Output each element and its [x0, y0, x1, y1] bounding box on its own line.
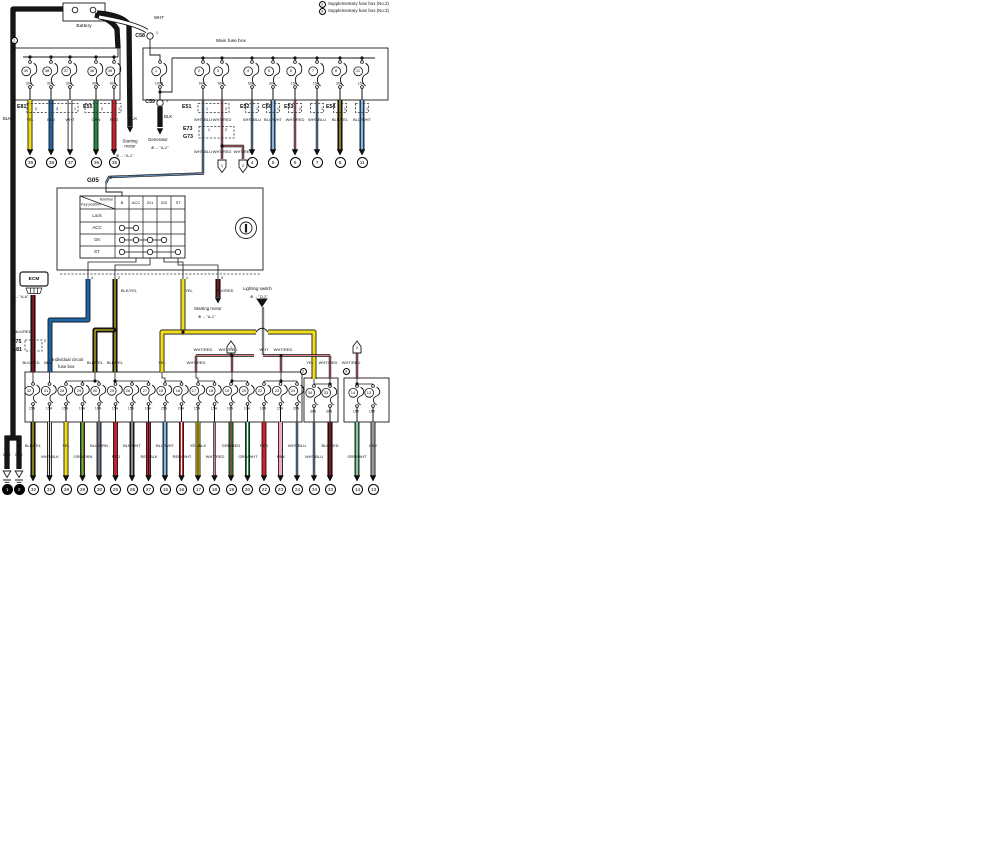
- wire-label: GRN/RED: [222, 444, 240, 448]
- wire-label: BLU: [47, 118, 55, 122]
- fuse-number: 28: [60, 389, 64, 393]
- fuse-rating: 15A: [291, 82, 297, 86]
- pin-number: 1: [166, 99, 168, 103]
- fuse-rating: 15A: [313, 82, 319, 86]
- terminal-number: 16: [176, 484, 187, 495]
- lighting-switch-label: Lighting switch: [243, 287, 272, 292]
- terminal-number: 5: [268, 157, 279, 168]
- fuse-rating: 20A: [293, 407, 299, 411]
- wire-label: WHT/BLK: [41, 455, 59, 459]
- connector-label: E51: [182, 104, 191, 110]
- connector-label: E52: [240, 104, 249, 110]
- wire-label: BLK/RED: [321, 444, 338, 448]
- wire-label: BLU: [44, 361, 52, 365]
- wire-label: WHT/BLU: [194, 118, 212, 122]
- terminal-number: 27: [143, 484, 154, 495]
- legend-mark: 3: [319, 8, 326, 15]
- terminal-number: 15: [160, 484, 171, 495]
- fuse-number: 18: [208, 389, 212, 393]
- individual-fuse-box-label: fuse box: [58, 365, 75, 370]
- ignition-column-header: IG2: [161, 201, 167, 205]
- fuse-rating: 30A: [269, 82, 275, 86]
- wire-label: WHT/RED: [342, 361, 361, 365]
- ignition-row-label: Lock: [92, 214, 101, 219]
- wire-label: WHT: [65, 118, 74, 122]
- fuse-number: 26: [126, 389, 130, 393]
- connector-label-g05: G05: [87, 178, 99, 185]
- wire-label: WHT/RED: [213, 118, 232, 122]
- wire-label: BLK: [15, 453, 23, 457]
- wire-label: RED: [260, 444, 268, 448]
- wire-label: BLK/RED: [22, 361, 39, 365]
- fuse-number: 1: [155, 69, 157, 73]
- terminal-number: 18: [209, 484, 220, 495]
- pin-number: 2: [101, 107, 103, 111]
- terminal-number: 38: [46, 157, 57, 168]
- fuse-number: 33: [324, 391, 328, 395]
- fuse-number: 17: [192, 389, 196, 393]
- fuse-rating: 60A: [248, 82, 254, 86]
- wire-label: GRN/WHT: [347, 455, 366, 459]
- fuse-number: 29: [76, 389, 80, 393]
- fuse-number: 15: [159, 389, 163, 393]
- diagram-labels: Battery WHT Main fuse box C58 1 C59 1 BL…: [0, 0, 1000, 860]
- fuse-number: 30: [93, 389, 97, 393]
- pin-number: 4: [91, 276, 93, 280]
- fuse-number: 22: [258, 389, 262, 393]
- fuse-rating: 30A: [26, 82, 32, 86]
- pin-number: 1: [321, 107, 323, 111]
- pin-number: 6: [110, 176, 112, 180]
- fuse-number: 20: [241, 389, 245, 393]
- fuse-rating: 15A: [358, 82, 364, 86]
- fuse-rating: 15A: [111, 407, 117, 411]
- wire-label: PNK: [276, 455, 284, 459]
- wire-label: BLU/WHT: [156, 444, 174, 448]
- wire-label: YEL: [306, 361, 314, 365]
- fuse-number: 14: [351, 391, 355, 395]
- terminal-number: 6: [290, 157, 301, 168]
- fuse-rating: 60A: [199, 82, 205, 86]
- wire-label: WHT/RED: [319, 361, 338, 365]
- connector-label: E81: [17, 104, 26, 110]
- fuse-rating: 10A: [243, 407, 249, 411]
- terminal-number: 26: [127, 484, 138, 495]
- fuse-rating: 60A: [110, 82, 116, 86]
- wire-label: BLK/YEL: [121, 289, 137, 293]
- terminal-number: 13: [368, 484, 379, 495]
- wire-label: YEL: [158, 361, 166, 365]
- generator-label: Generator: [148, 138, 168, 143]
- pin-number: 1: [118, 107, 120, 111]
- wire-label: GRY: [369, 444, 378, 448]
- battery-label: Battery: [76, 23, 91, 28]
- wire-label: BLK/WHT: [123, 444, 141, 448]
- wire-label: YEL: [185, 289, 193, 293]
- wire-label: BLK/YEL: [87, 361, 103, 365]
- ignition-row-label: On: [94, 238, 100, 243]
- wire-label: BLU/ORN: [90, 444, 108, 448]
- wire-label: RED: [111, 455, 119, 459]
- wire-label: WHT/RED: [213, 150, 232, 154]
- terminal-number: 22: [259, 484, 270, 495]
- terminal-number: 32: [28, 484, 39, 495]
- fuse-rating: 20A: [177, 407, 183, 411]
- fuse-number: 35: [108, 69, 112, 73]
- pin-number: 2: [225, 128, 227, 132]
- pin-number: 2: [299, 107, 301, 111]
- wire-label: GRN/ORN: [73, 455, 92, 459]
- generator-ref: ⊕→ "A-2": [151, 146, 169, 150]
- fuse-number: 36: [90, 69, 94, 73]
- ref-arrow-number: 2: [356, 346, 358, 350]
- terminal-number: 17: [193, 484, 204, 495]
- wire-label: RED: [110, 118, 118, 122]
- fuse-number: 27: [142, 389, 146, 393]
- fuse-number: 6: [290, 69, 292, 73]
- fuse-rating: 10A: [144, 407, 150, 411]
- ref-arrow-number: 1: [230, 346, 232, 350]
- fuse-rating: 15A: [210, 407, 216, 411]
- connector-label: C60: [262, 104, 272, 110]
- wire-label: WHT/RED: [286, 118, 305, 122]
- wire-label: WHT/RED: [187, 361, 206, 365]
- wire-label: WHT/RED: [274, 348, 293, 352]
- pin-number: 1: [366, 107, 368, 111]
- wire-label: WHT/BLU: [243, 118, 261, 122]
- fuse-rating: 30A: [47, 82, 53, 86]
- terminal-number: 20: [242, 484, 253, 495]
- fuse-number: 32: [27, 389, 31, 393]
- connector-label-e73: E73: [183, 126, 192, 132]
- connector-label: E54: [326, 104, 335, 110]
- pin-number: 1: [277, 107, 279, 111]
- pin-number: 3: [221, 276, 223, 280]
- connector-label-c58: C58: [135, 33, 145, 39]
- fuse-number: 24: [291, 389, 295, 393]
- wire-label: RED/WHT: [172, 455, 191, 459]
- wire-label: BLK: [3, 453, 11, 457]
- ref-arrow-number: 1: [221, 164, 223, 168]
- main-fuse-box-title: Main fuse box: [216, 38, 246, 43]
- fuse-number: 2: [198, 69, 200, 73]
- pin-number: 2: [118, 276, 120, 280]
- legend-mark: 2: [319, 1, 326, 8]
- fuse-number: 34: [308, 391, 312, 395]
- terminal-number: 35: [109, 157, 120, 168]
- wire-label-blk: BLK: [3, 117, 11, 122]
- terminal-number: 23: [275, 484, 286, 495]
- wire-label: RED/BLK: [140, 455, 157, 459]
- pin-number: 1: [74, 107, 76, 111]
- fuse-rating: 30A: [326, 410, 332, 414]
- wire-label: WHT/RED: [205, 455, 224, 459]
- terminal-number: 7: [312, 157, 323, 168]
- terminal-number: 14: [352, 484, 363, 495]
- connector-label: E53: [284, 104, 293, 110]
- fuse-rating: 15A: [29, 407, 35, 411]
- connector-label-g73: G73: [183, 134, 193, 140]
- fuse-rating: 30A: [310, 410, 316, 414]
- fuse-number: 11: [356, 69, 360, 73]
- starting-motor-label: Starting motor: [194, 307, 222, 312]
- wire-label: BLK/YEL: [25, 444, 41, 448]
- fuse-number: 13: [367, 391, 371, 395]
- wire-label: BLK/YEL: [107, 361, 123, 365]
- terminal-number: 19: [226, 484, 237, 495]
- terminal-number: 36: [91, 157, 102, 168]
- wire-label-blk: BLK: [129, 117, 137, 122]
- wire-label: YEL: [26, 118, 34, 122]
- terminal-number: 33: [325, 484, 336, 495]
- fuse-rating: 100A: [155, 82, 163, 86]
- fuse-rating: 15A: [276, 407, 282, 411]
- terminal-number: 4: [247, 157, 258, 168]
- fuse-number: 5: [268, 69, 270, 73]
- wire-label: WHT: [259, 348, 268, 352]
- fuse-rating: 15A: [62, 407, 68, 411]
- wire-label: WHT/BLU: [305, 455, 323, 459]
- connector-label-e75: E75: [12, 339, 21, 345]
- fuse-box-mark: 1: [11, 37, 18, 44]
- fuse-rating: 10A: [78, 407, 84, 411]
- wire-label: WHT/RED: [194, 348, 213, 352]
- terminal-number: 30: [94, 484, 105, 495]
- fuse-rating: 30A: [336, 82, 342, 86]
- pin-number: 1: [186, 276, 188, 280]
- fuse-box-mark: 2: [300, 368, 307, 375]
- fuse-number: 38: [45, 69, 49, 73]
- ignition-row-label: ACC: [92, 226, 101, 231]
- pin-number: 1: [206, 107, 208, 111]
- terminal-number: 28: [61, 484, 72, 495]
- wire-label-blk: BLK: [164, 115, 172, 120]
- wire-label: GRN: [92, 118, 101, 122]
- ignition-column-header: B: [121, 201, 124, 205]
- terminal-number: 25: [110, 484, 121, 495]
- wire-label: WHT/BLU: [308, 118, 326, 122]
- pin-number: 1: [156, 31, 158, 35]
- ignition-row-label: ST: [94, 250, 100, 255]
- lighting-switch-ref: ⊕→ "D-2": [250, 295, 268, 299]
- fuse-number: 39: [24, 69, 28, 73]
- fuse-number: 4: [247, 69, 249, 73]
- legend-item: Supplementary fuse box (No.3): [328, 9, 389, 14]
- wire-label: YEL/BLK: [190, 444, 206, 448]
- ref-arrow-number: 2: [242, 164, 244, 168]
- starting-motor-ref: ⊕→ "A-1": [116, 154, 134, 158]
- wire-label: BLK/YEL: [332, 118, 348, 122]
- fuse-rating: 15A: [45, 407, 51, 411]
- ignition-corner-terminal: Terminal: [99, 198, 112, 202]
- pin-number: 1: [208, 128, 210, 132]
- terminal-number: 34: [309, 484, 320, 495]
- connector-label-g81: G81: [12, 347, 22, 353]
- fuse-number: 25: [109, 389, 113, 393]
- pin-number: 2: [35, 107, 37, 111]
- wire-label: YEL: [62, 444, 70, 448]
- fuse-rating: 30A: [92, 82, 98, 86]
- fuse-rating: 80A: [218, 82, 224, 86]
- wire-label: BLK/RED: [14, 330, 31, 334]
- fuse-box-mark: 3: [343, 368, 350, 375]
- fuse-rating: 10A: [95, 407, 101, 411]
- pin-number: 1: [256, 107, 258, 111]
- starting-motor-ref: ⊕→ "A-1": [198, 315, 216, 319]
- wire-label: BLK/RED: [216, 289, 233, 293]
- fuse-number: 23: [274, 389, 278, 393]
- fuse-number: 19: [225, 389, 229, 393]
- wire-label: BLU/WHT: [264, 118, 282, 122]
- terminal-number: 39: [25, 157, 36, 168]
- wire-label: WHT/RED: [219, 348, 238, 352]
- fuse-rating: 10A: [260, 407, 266, 411]
- connector-label-c59: C59: [145, 99, 155, 105]
- fuse-number: 37: [64, 69, 68, 73]
- fuse-number: 3: [217, 69, 219, 73]
- fuse-number: 16: [175, 389, 179, 393]
- fuse-rating: 10A: [227, 407, 233, 411]
- fuse-number: 7: [312, 69, 314, 73]
- terminal-number: 37: [65, 157, 76, 168]
- wiring-diagram-page: Battery WHT Main fuse box C58 1 C59 1 BL…: [0, 0, 1000, 860]
- ecm-ref: ⊕→ "A-6": [11, 295, 29, 299]
- terminal-number: 8: [335, 157, 346, 168]
- fuse-rating: 25A: [161, 407, 167, 411]
- wire-label: GRN/WHT: [238, 455, 257, 459]
- wire-label: BLU/WHT: [353, 118, 371, 122]
- fuse-number: 31: [43, 389, 47, 393]
- starting-motor-label: Starting motor: [122, 139, 139, 149]
- pin-number: 3: [56, 107, 58, 111]
- terminal-number: 31: [44, 484, 55, 495]
- ignition-column-header: ACC: [132, 201, 140, 205]
- legend-item: Supplementary fuse box (No.2): [328, 2, 389, 7]
- fuse-rating: 15A: [194, 407, 200, 411]
- fuse-rating: 15A: [353, 410, 359, 414]
- terminal-number: 29: [77, 484, 88, 495]
- pin-number: 2: [225, 107, 227, 111]
- ignition-column-header: IG1: [147, 201, 153, 205]
- pin-number: 2: [44, 339, 46, 343]
- pin-number: 1: [344, 107, 346, 111]
- terminal-number: 24: [292, 484, 303, 495]
- terminal-number: 11: [357, 157, 368, 168]
- wire-label-wht: WHT: [154, 16, 164, 21]
- connector-label: E55: [83, 104, 92, 110]
- ecm-label: ECM: [29, 276, 40, 281]
- ground-terminal-number: 1: [2, 484, 13, 495]
- wire-label: WHT/BLU: [194, 150, 212, 154]
- fuse-rating: 30A: [66, 82, 72, 86]
- wire-label: WHT/BLU: [288, 444, 306, 448]
- wire-label: WHT/RED: [234, 150, 253, 154]
- individual-fuse-box-label: Individual circuit: [52, 358, 83, 363]
- ground-terminal-number: 2: [14, 484, 25, 495]
- fuse-rating: 15A: [369, 410, 375, 414]
- fuse-rating: 15A: [128, 407, 134, 411]
- fuse-number: 8: [335, 69, 337, 73]
- ignition-corner-key-position: Key position: [81, 203, 100, 207]
- ignition-column-header: ST: [175, 201, 180, 205]
